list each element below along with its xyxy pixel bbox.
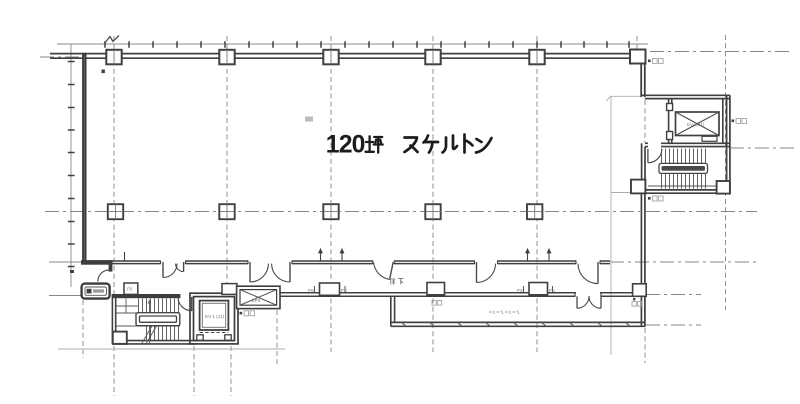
svg-text:EV-2(11): EV-2(11) xyxy=(687,122,705,127)
svg-text:PS: PS xyxy=(549,288,555,293)
svg-text:EPS: EPS xyxy=(252,298,261,303)
svg-text:PS: PS xyxy=(517,288,523,293)
svg-text:EV-1 (11): EV-1 (11) xyxy=(205,314,225,319)
svg-text:PS: PS xyxy=(127,287,133,292)
svg-text:120: 120 xyxy=(326,132,365,159)
svg-text:PS: PS xyxy=(341,288,347,293)
svg-text:PS: PS xyxy=(308,288,314,293)
